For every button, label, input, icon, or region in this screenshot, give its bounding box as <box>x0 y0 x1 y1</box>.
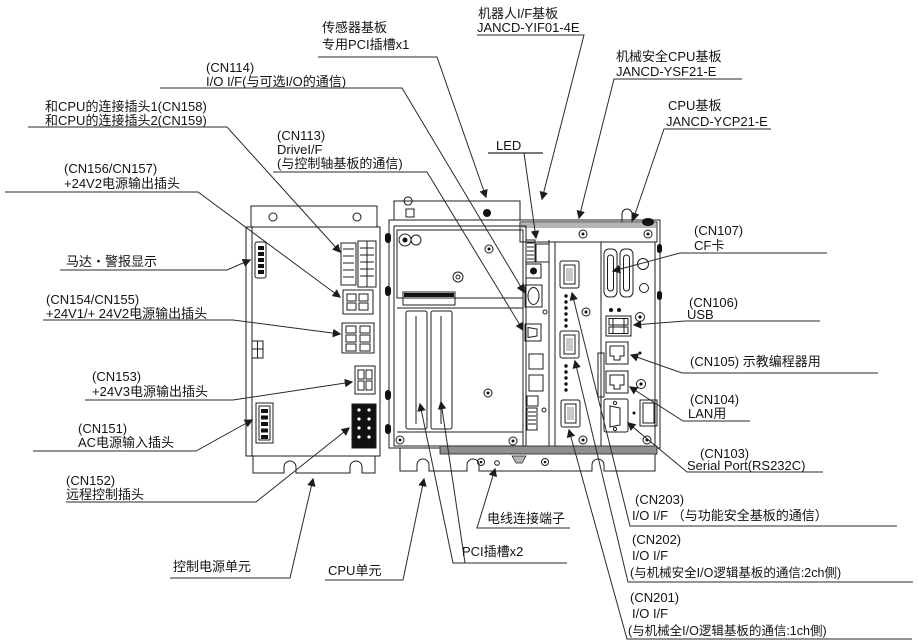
label-cn103: Serial Port(RS232C) <box>687 458 806 473</box>
rj45-teach-pendant <box>606 342 628 364</box>
led-dot <box>609 308 613 312</box>
sensor-pci-cover <box>397 230 523 298</box>
label-cn113: DriveI/F <box>277 142 323 157</box>
label-motor-alarm: 马达・警报显示 <box>66 254 157 269</box>
screw-center <box>480 461 483 464</box>
label-cn152: 远程控制插头 <box>66 487 144 502</box>
power-supply-unit <box>246 206 380 473</box>
io-connector-section <box>579 242 657 446</box>
labels: 传感器基板 专用PCI插槽x1 机器人I/F基板 JANCD-YIF01-4E … <box>45 6 841 638</box>
usb-connector <box>606 316 631 336</box>
status-led-dots-1 <box>564 294 567 327</box>
screw-center <box>582 439 585 442</box>
small-connector <box>252 341 263 358</box>
status-led-dots-2 <box>564 364 567 391</box>
label-pci-slots: PCI插槽x2 <box>462 544 523 559</box>
leader-cn114 <box>160 88 524 292</box>
label-cn201: I/O I/F <box>632 606 668 621</box>
label-cn202: I/O I/F <box>632 548 668 563</box>
leader-pci-slots-2 <box>441 402 465 563</box>
clip <box>512 456 526 463</box>
cpu-unit <box>385 197 662 471</box>
label-cn104: LAN用 <box>688 406 726 421</box>
label-cn158-159: 和CPU的连接插头1(CN158) <box>45 99 207 114</box>
label-cn203: I/O I/F （与功能安全基板的通信） <box>632 508 828 523</box>
diagram-page: 传感器基板 专用PCI插槽x1 机器人I/F基板 JANCD-YIF01-4E … <box>0 0 918 643</box>
bracket-hole <box>353 213 361 221</box>
label-cn153: +24V3电源输出插头 <box>92 384 208 399</box>
panel-hole <box>543 310 547 314</box>
connector-cn154-cn155 <box>342 323 374 353</box>
screw-center <box>638 315 641 318</box>
label-cpu-unit: CPU单元 <box>328 563 381 578</box>
cf-card-slot <box>604 249 649 297</box>
connector-cn201-target <box>561 400 580 427</box>
connector-cn202-target <box>560 331 579 358</box>
connector-cn203-target <box>560 261 579 288</box>
connector-cn152 <box>352 404 376 448</box>
connector-cn153 <box>355 366 375 394</box>
port-a <box>529 354 543 369</box>
keyhole-slot <box>404 197 414 217</box>
label-sensor-pci: 专用PCI插槽x1 <box>322 37 409 52</box>
bottom-foot-bracket <box>253 456 375 473</box>
leader-cn156-157 <box>5 192 340 297</box>
led-dot <box>617 308 621 312</box>
connector-cn114-target <box>525 285 542 307</box>
wire-terminal-hole <box>495 461 500 466</box>
pin-strip <box>527 408 537 430</box>
leader-cn106 <box>634 321 820 325</box>
connector-cn156-cn157 <box>343 290 373 314</box>
label-cn113: (CN113) <box>277 128 325 143</box>
cpu-bottom-rail <box>400 446 657 471</box>
motor-alarm-led-strip <box>255 242 266 278</box>
leader-robot-if <box>477 35 584 199</box>
label-cn154-155: +24V1/+ 24V2电源输出插头 <box>46 306 207 321</box>
label-cn156-157: +24V2电源输出插头 <box>64 176 180 191</box>
label-cn152: (CN152) <box>66 473 115 488</box>
bracket-screw <box>483 209 491 217</box>
label-cn202: (CN202) <box>632 532 681 547</box>
label-safety-cpu: 机械安全CPU基板 <box>616 49 721 64</box>
blank-plate <box>640 400 657 426</box>
connector-cn151 <box>256 403 273 443</box>
controller-diagram: 传感器基板 专用PCI插槽x1 机器人I/F基板 JANCD-YIF01-4E … <box>0 0 918 643</box>
connector-cn158-cn159 <box>341 241 376 287</box>
label-cn114: I/O I/F(与可选I/O的通信) <box>206 74 346 89</box>
panel-dot <box>633 412 636 415</box>
rj45-lan <box>606 371 628 393</box>
led-connector-block <box>526 240 549 262</box>
label-robot-if: 机器人I/F基板 <box>478 6 558 21</box>
label-robot-if: JANCD-YIF01-4E <box>477 20 580 35</box>
leader-cpu-board <box>633 129 771 220</box>
label-wire-terminal: 电线连接端子 <box>487 511 565 526</box>
pci-panel <box>394 226 526 446</box>
pin-header <box>527 396 538 406</box>
label-led: LED <box>496 138 521 153</box>
label-cn158-159: 和CPU的连接插头2(CN159) <box>45 113 207 128</box>
port-b <box>529 375 543 391</box>
panel-hole <box>542 408 546 412</box>
connector-cn113-target <box>525 324 541 341</box>
safety-io-ports-column <box>555 242 604 446</box>
label-cn151: AC电源输入插头 <box>78 435 174 450</box>
label-cn107: (CN107) <box>694 223 743 238</box>
leader-cn154-155 <box>43 320 340 334</box>
label-cn154-155: (CN154/CN155) <box>46 292 139 307</box>
label-cn107: CF卡 <box>694 238 724 253</box>
screw-block <box>526 264 541 278</box>
bracket-hole <box>269 213 277 221</box>
top-rail <box>520 209 657 242</box>
serial-port-dsub <box>604 399 628 432</box>
label-cn114: (CN114) <box>206 60 254 75</box>
label-cn113: (与控制轴基板的通信) <box>277 156 403 171</box>
screw-center <box>544 461 547 464</box>
leader-pci-slots-1 <box>420 404 567 563</box>
label-cn105: (CN105) 示教编程器用 <box>690 354 821 369</box>
rail-bump <box>642 218 654 226</box>
label-cn104: (CN104) <box>690 392 739 407</box>
leader-cn107 <box>613 253 827 271</box>
label-cpu-board: JANCD-YCP21-E <box>666 114 768 129</box>
panel-dot <box>639 352 642 355</box>
leader-cn203 <box>572 293 897 526</box>
robot-if-board-column <box>523 230 549 446</box>
label-cn106: USB <box>687 307 714 322</box>
label-cn202: (与机械安全I/O逻辑基板的通信:2ch側) <box>630 565 841 580</box>
label-safety-cpu: JANCD-YSF21-E <box>616 64 717 79</box>
screw-center <box>639 382 642 385</box>
label-cn153: (CN153) <box>92 369 141 384</box>
label-cpu-board: CPU基板 <box>668 98 721 113</box>
label-cn156-157: (CN156/CN157) <box>64 161 157 176</box>
label-cn203: (CN203) <box>635 492 684 507</box>
label-cn151: (CN151) <box>78 421 127 436</box>
label-cn201: (与机械全I/O逻辑基板的通信:1ch側) <box>628 623 827 638</box>
label-cn201: (CN201) <box>630 590 679 605</box>
screw-center <box>585 311 588 314</box>
label-power-unit: 控制电源单元 <box>173 559 251 574</box>
label-sensor-pci: 传感器基板 <box>322 20 387 35</box>
